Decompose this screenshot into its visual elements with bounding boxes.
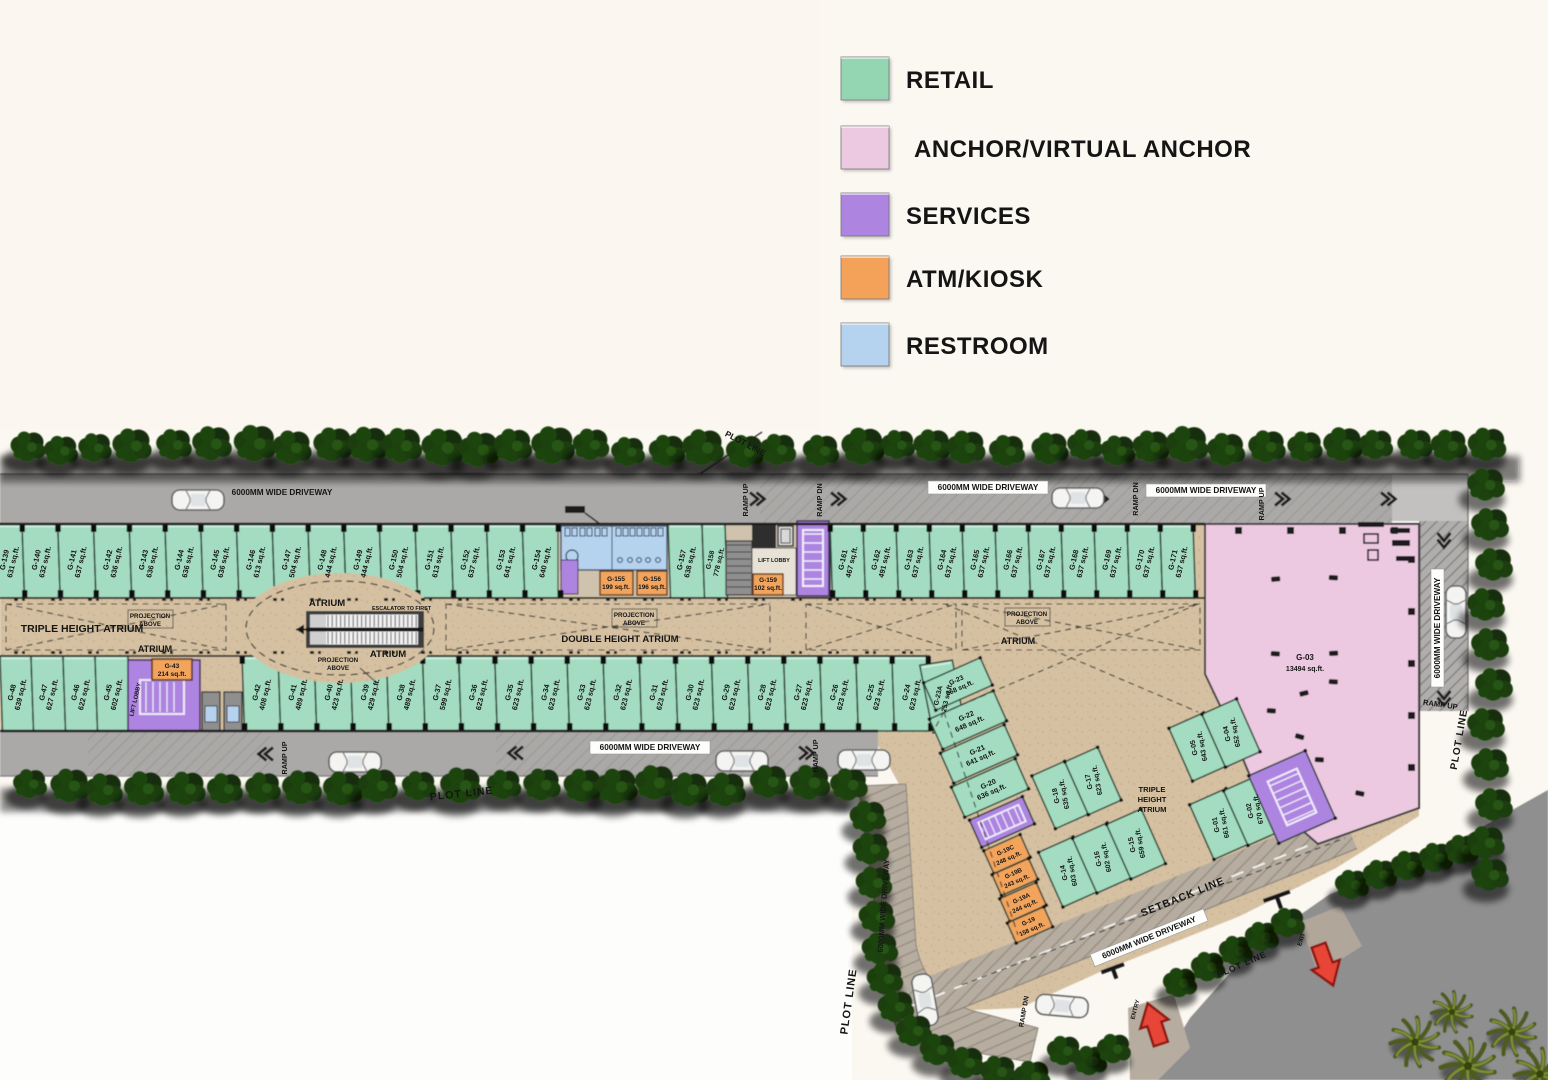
svg-text:PROJECTION: PROJECTION xyxy=(130,613,171,620)
svg-text:G-43: G-43 xyxy=(165,663,180,670)
svg-text:PROJECTION: PROJECTION xyxy=(318,657,359,664)
svg-text:214 sq.ft.: 214 sq.ft. xyxy=(158,671,187,678)
svg-text:RETAIL: RETAIL xyxy=(906,67,994,94)
svg-text:ESCALATOR TO FIRST: ESCALATOR TO FIRST xyxy=(372,606,432,612)
svg-text:RESTROOM: RESTROOM xyxy=(906,333,1049,360)
svg-text:G-03: G-03 xyxy=(1296,653,1314,662)
svg-text:199 sq.ft.: 199 sq.ft. xyxy=(602,584,630,591)
svg-text:RAMP UP: RAMP UP xyxy=(1257,487,1266,520)
svg-text:ABOVE: ABOVE xyxy=(327,665,349,672)
svg-text:G-155: G-155 xyxy=(607,576,625,583)
svg-text:ATM/KIOSK: ATM/KIOSK xyxy=(906,266,1044,293)
svg-text:TRIPLE HEIGHT ATRIUM: TRIPLE HEIGHT ATRIUM xyxy=(21,623,144,635)
svg-text:G-156: G-156 xyxy=(643,576,661,583)
svg-text:102 sq.ft.: 102 sq.ft. xyxy=(754,585,782,592)
svg-text:TRIPLE: TRIPLE xyxy=(1138,785,1165,794)
svg-text:RAMP UP: RAMP UP xyxy=(280,741,289,774)
svg-text:SERVICES: SERVICES xyxy=(906,203,1031,230)
svg-text:6000MM WIDE DRIVEWAY: 6000MM WIDE DRIVEWAY xyxy=(938,483,1039,492)
svg-text:ABOVE: ABOVE xyxy=(623,620,645,627)
svg-text:6000MM WIDE DRIVEWAY: 6000MM WIDE DRIVEWAY xyxy=(1433,577,1442,678)
svg-text:ATRIUM: ATRIUM xyxy=(370,649,406,660)
svg-text:G-159: G-159 xyxy=(759,577,777,584)
svg-text:LIFT LOBBY: LIFT LOBBY xyxy=(758,558,790,564)
svg-text:ATRIUM: ATRIUM xyxy=(1138,805,1167,814)
svg-text:RAMP UP: RAMP UP xyxy=(741,483,750,516)
svg-text:DOUBLE HEIGHT ATRIUM: DOUBLE HEIGHT ATRIUM xyxy=(561,634,678,645)
svg-text:6000MM WIDE DRIVEWAY: 6000MM WIDE DRIVEWAY xyxy=(232,488,333,497)
svg-text:ATRIUM: ATRIUM xyxy=(138,644,172,654)
svg-text:6000MM WIDE DRIVEWAY: 6000MM WIDE DRIVEWAY xyxy=(600,743,701,752)
svg-text:6000MM WIDE DRIVEWAY: 6000MM WIDE DRIVEWAY xyxy=(1156,486,1257,495)
svg-text:ATRIUM: ATRIUM xyxy=(309,598,345,609)
svg-text:ATRIUM: ATRIUM xyxy=(1001,636,1035,646)
svg-text:PROJECTION: PROJECTION xyxy=(614,612,655,619)
svg-text:RAMP UP: RAMP UP xyxy=(811,739,820,772)
svg-text:ABOVE: ABOVE xyxy=(1016,619,1038,626)
svg-text:RAMP DN: RAMP DN xyxy=(1131,482,1140,515)
svg-text:PROJECTION: PROJECTION xyxy=(1007,611,1048,618)
svg-text:ANCHOR/VIRTUAL ANCHOR: ANCHOR/VIRTUAL ANCHOR xyxy=(914,136,1251,163)
svg-text:HEIGHT: HEIGHT xyxy=(1138,795,1167,804)
svg-text:196 sq.ft.: 196 sq.ft. xyxy=(638,584,666,591)
svg-text:13494 sq.ft.: 13494 sq.ft. xyxy=(1286,666,1324,673)
svg-text:RAMP DN: RAMP DN xyxy=(815,483,824,516)
